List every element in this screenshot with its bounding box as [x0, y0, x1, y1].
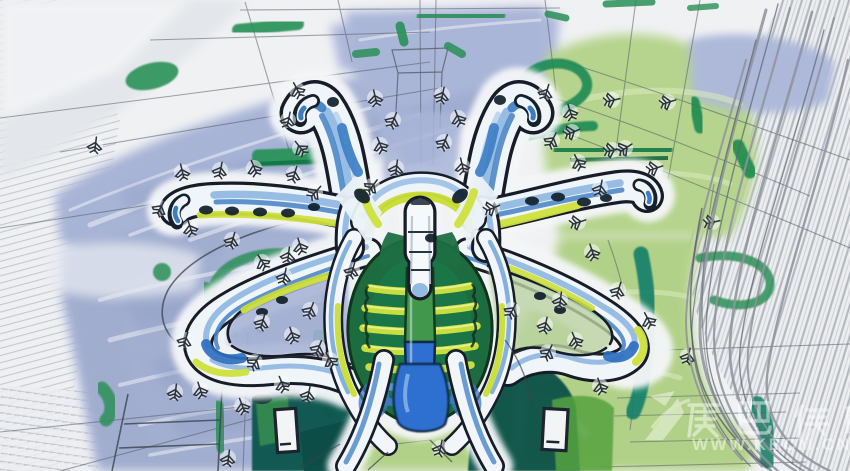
svg-text:WWW.KBCM.CN: WWW.KBCM.CN	[692, 435, 850, 454]
